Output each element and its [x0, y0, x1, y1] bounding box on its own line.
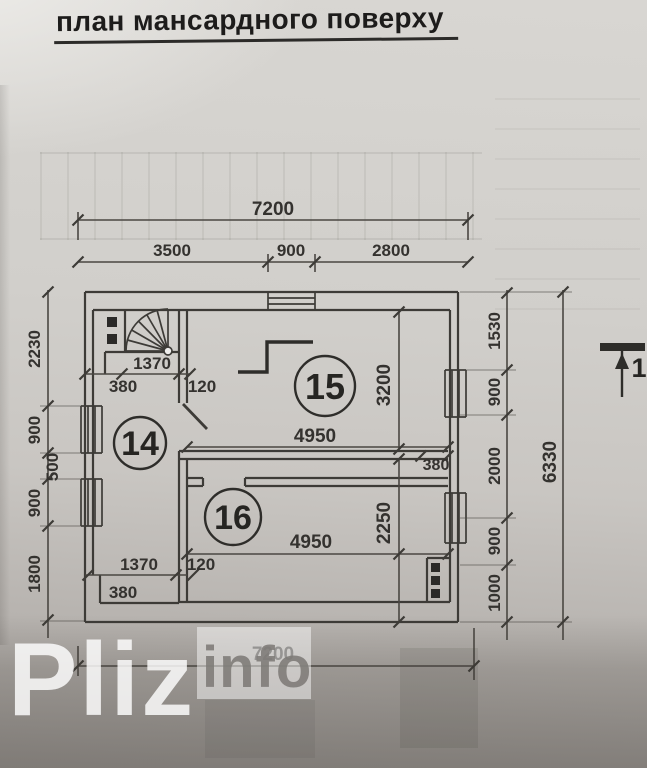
- dim-top-total: 7200: [252, 199, 294, 220]
- dim-right-900b: 900: [485, 527, 504, 555]
- section-marker: 1: [600, 343, 647, 397]
- dim-left-900a: 900: [25, 416, 44, 444]
- section-arrow-icon: [615, 353, 629, 369]
- dim-4950-bottom: 4950: [290, 532, 332, 553]
- dim-right-total: 6330: [540, 441, 561, 483]
- dim-120-bottom: 120: [187, 555, 215, 574]
- dimension-labels: 7200 3500 900 2800 2230 900 500 900 1800…: [25, 199, 561, 665]
- dim-4950-top: 4950: [294, 426, 336, 447]
- dim-top-900: 900: [277, 241, 305, 260]
- dim-stair-1370-top: 1370: [133, 354, 171, 373]
- dim-left-2230: 2230: [25, 330, 44, 368]
- paper-smudge: [205, 700, 315, 758]
- dim-stair-1370-bottom: 1370: [120, 555, 158, 574]
- dim-right-2000: 2000: [485, 447, 504, 485]
- room-14-number: 14: [121, 425, 159, 463]
- section-marker-number: 1: [631, 353, 646, 383]
- top-dormer-window: [268, 292, 315, 310]
- dim-left-900b: 900: [25, 489, 44, 517]
- dim-380-top: 380: [109, 377, 137, 396]
- room-15-number: 15: [305, 366, 345, 407]
- watermark-brand: Pliz: [8, 628, 195, 732]
- door-leaf: [183, 404, 207, 429]
- dim-380-bottom: 380: [109, 583, 137, 602]
- paper-smudge: [400, 648, 478, 748]
- dim-2250: 2250: [374, 502, 395, 544]
- dim-right-900a: 900: [485, 378, 504, 406]
- dim-left-1800: 1800: [25, 555, 44, 593]
- dim-right-1000: 1000: [485, 574, 504, 612]
- dim-3200: 3200: [374, 364, 395, 406]
- dim-380-right: 380: [423, 457, 450, 474]
- room-16-number: 16: [214, 499, 252, 537]
- scanned-floor-plan-photo: план мансардного поверху: [0, 0, 647, 768]
- watermark-info: info: [202, 634, 312, 701]
- dim-top-2800: 2800: [372, 241, 410, 260]
- dim-120-top: 120: [188, 377, 216, 396]
- dim-right-1530: 1530: [485, 312, 504, 350]
- dim-top-3500: 3500: [153, 241, 191, 260]
- dim-left-500: 500: [43, 453, 62, 481]
- spiral-staircase: [126, 309, 172, 355]
